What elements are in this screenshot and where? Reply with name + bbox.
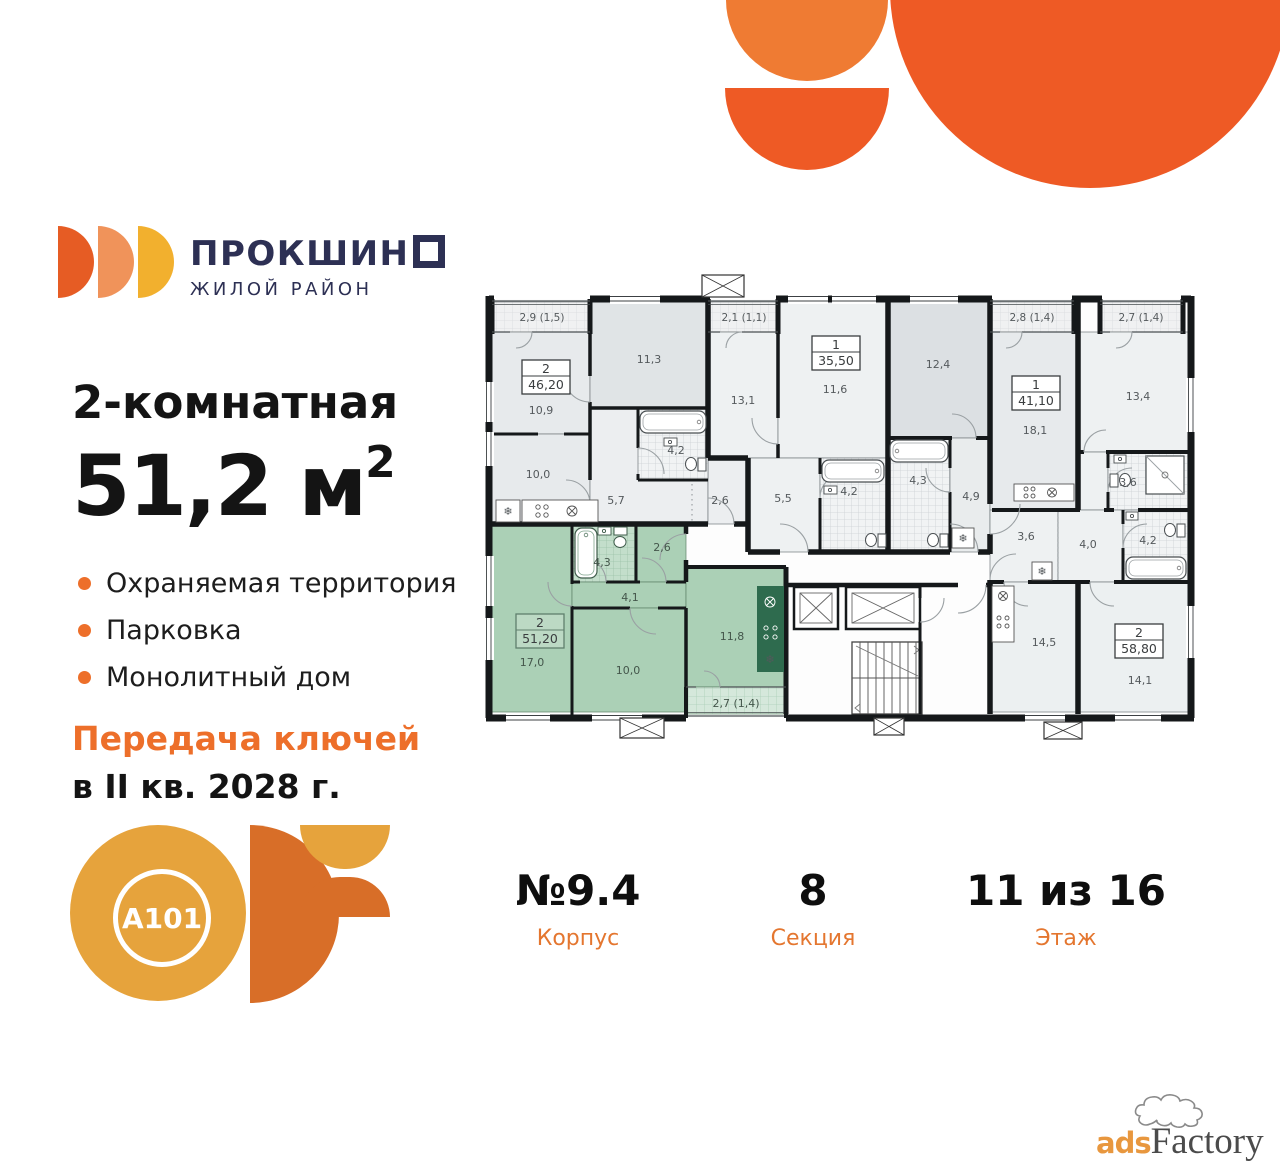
svg-text:41,10: 41,10	[1018, 393, 1054, 408]
building-label: Корпус	[516, 926, 641, 951]
svg-text:2,1 (1,1): 2,1 (1,1)	[722, 312, 767, 324]
kitchen-counter	[1014, 484, 1074, 501]
svg-text:17,0: 17,0	[520, 656, 545, 669]
watermark-ads: ads	[1096, 1126, 1151, 1160]
a101-text: A101	[122, 902, 202, 935]
a101-ring-icon: A101	[113, 869, 211, 967]
svg-text:❄: ❄	[1037, 565, 1046, 578]
bullet-dot-icon	[78, 671, 91, 684]
svg-text:4,0: 4,0	[1079, 538, 1097, 551]
svg-text:❄: ❄	[503, 505, 512, 518]
watermark-adsfactory: adsFactory	[1096, 1098, 1266, 1158]
svg-text:2,8 (1,4): 2,8 (1,4)	[1010, 312, 1055, 324]
svg-text:2,6: 2,6	[711, 494, 729, 507]
svg-text:1: 1	[1032, 377, 1040, 392]
feature-label: Парковка	[106, 615, 242, 646]
feature-item: Монолитный дом	[72, 662, 482, 693]
svg-text:❄: ❄	[958, 532, 967, 545]
svg-text:10,0: 10,0	[616, 664, 641, 677]
svg-text:2,9 (1,5): 2,9 (1,5)	[520, 312, 565, 324]
floor-number: 11 из 16	[966, 870, 1166, 912]
floor-label: Этаж	[966, 926, 1166, 951]
feature-label: Охраняемая территория	[106, 568, 457, 599]
svg-text:11,3: 11,3	[637, 353, 662, 366]
svg-text:4,2: 4,2	[667, 444, 685, 457]
sink-icon	[824, 486, 837, 494]
real-estate-ad: { "brand": { "name_main": "ПРОКШИН", "na…	[0, 0, 1280, 1160]
brand-logo-discs-icon	[58, 226, 174, 298]
bathtub-icon	[575, 528, 597, 578]
watermark-text: adsFactory	[1096, 1120, 1264, 1163]
decor-big-circle	[890, 0, 1280, 188]
washer-icon: ❄	[1032, 562, 1052, 580]
apartment-tag: 258,80	[1115, 624, 1163, 658]
handover-line2: в II кв. 2028 г.	[72, 767, 482, 807]
brand-subtitle: ЖИЛОЙ РАЙОН	[190, 279, 445, 300]
svg-text:❄: ❄	[765, 653, 774, 666]
brand-text: ПРОКШИН ЖИЛОЙ РАЙОН	[190, 226, 445, 300]
listing-info: 2-комнатная 51,2 м2 Охраняемая территори…	[72, 380, 482, 806]
feature-item: Охраняемая территория	[72, 568, 482, 599]
svg-text:4,2: 4,2	[1139, 534, 1157, 547]
brand-logo: ПРОКШИН ЖИЛОЙ РАЙОН	[58, 226, 445, 300]
svg-text:2: 2	[542, 361, 550, 376]
feature-list: Охраняемая территория Парковка Монолитны…	[72, 568, 482, 693]
svg-text:5,7: 5,7	[607, 494, 625, 507]
bullet-dot-icon	[78, 624, 91, 637]
svg-text:35,50: 35,50	[818, 353, 854, 368]
bullet-dot-icon	[78, 577, 91, 590]
kitchen-counter-green: ❄	[757, 586, 784, 672]
sink-icon	[1126, 512, 1138, 520]
disc-orange-icon	[58, 226, 94, 298]
svg-text:4,3: 4,3	[593, 556, 611, 569]
svg-text:2,7 (1,4): 2,7 (1,4)	[1119, 312, 1164, 324]
watermark-factory: Factory	[1151, 1121, 1264, 1162]
washer-icon: ❄	[952, 528, 974, 548]
decor-orange-shapes	[680, 0, 1280, 196]
bathtub-icon	[890, 440, 948, 462]
apartment-tag: 141,10	[1012, 376, 1060, 410]
sink-icon	[1114, 455, 1126, 463]
staircase-icon	[852, 642, 922, 714]
kitchen-counter: ❄	[496, 500, 598, 522]
svg-text:11,6: 11,6	[823, 383, 848, 396]
svg-text:11,8: 11,8	[720, 630, 745, 643]
building-number: №9.4	[516, 870, 641, 912]
bathtub-icon	[640, 411, 706, 433]
listing-title: 2-комнатная	[72, 380, 482, 425]
brand-name-text: ПРОКШИН	[190, 234, 409, 274]
svg-text:51,20: 51,20	[522, 631, 558, 646]
spec-building: №9.4 Корпус	[516, 870, 641, 951]
listing-area: 51,2 м2	[72, 441, 482, 528]
svg-text:46,20: 46,20	[528, 377, 564, 392]
feature-item: Парковка	[72, 615, 482, 646]
svg-text:1: 1	[832, 337, 840, 352]
kitchen-counter	[992, 586, 1014, 642]
handover-line1: Передача ключей	[72, 719, 482, 759]
svg-text:2,6: 2,6	[653, 541, 671, 554]
svg-text:3,6: 3,6	[1017, 530, 1035, 543]
svg-text:3,6: 3,6	[1119, 476, 1137, 489]
bathtub-icon	[822, 460, 884, 482]
brand-square-o-icon	[413, 235, 445, 268]
svg-text:4,3: 4,3	[909, 474, 927, 487]
svg-text:13,1: 13,1	[731, 394, 756, 407]
svg-text:10,0: 10,0	[526, 468, 551, 481]
decor-halfcircle-dark	[725, 88, 889, 170]
svg-text:2: 2	[1135, 625, 1143, 640]
svg-text:2: 2	[536, 615, 544, 630]
shower-icon	[1146, 456, 1184, 494]
svg-text:14,5: 14,5	[1032, 636, 1057, 649]
svg-text:12,4: 12,4	[926, 358, 951, 371]
floor-plan: ❄ ❄ ❄ ❄ 246,20 135,50 141,10 258,80 251,…	[480, 272, 1200, 746]
sink-icon	[598, 527, 611, 535]
apartment-tag-highlighted: 251,20	[516, 614, 564, 648]
section-number: 8	[771, 870, 856, 912]
svg-text:58,80: 58,80	[1121, 641, 1157, 656]
svg-text:2,7 (1,4): 2,7 (1,4)	[712, 697, 759, 710]
svg-text:14,1: 14,1	[1128, 674, 1153, 687]
svg-text:4,2: 4,2	[840, 485, 858, 498]
brand-name: ПРОКШИН	[190, 232, 445, 271]
area-superscript: 2	[365, 437, 396, 488]
svg-text:10,9: 10,9	[529, 404, 554, 417]
disc-yellow-icon	[138, 226, 174, 298]
svg-text:13,4: 13,4	[1126, 390, 1151, 403]
apartment-tag: 135,50	[812, 336, 860, 370]
svg-text:4,1: 4,1	[621, 591, 639, 604]
bathtub-icon	[1126, 557, 1186, 579]
feature-label: Монолитный дом	[106, 662, 351, 693]
developer-logo: A101	[70, 823, 400, 1008]
section-label: Секция	[771, 926, 856, 951]
area-value: 51,2 м	[72, 437, 365, 535]
svg-text:4,9: 4,9	[962, 490, 980, 503]
disc-light-orange-icon	[98, 226, 134, 298]
spec-section: 8 Секция	[771, 870, 856, 951]
decor-halfcircle-light	[726, 0, 888, 81]
svg-text:18,1: 18,1	[1023, 424, 1048, 437]
spec-floor: 11 из 16 Этаж	[966, 870, 1166, 951]
apartment-tag: 246,20	[522, 360, 570, 394]
svg-text:5,5: 5,5	[774, 492, 792, 505]
